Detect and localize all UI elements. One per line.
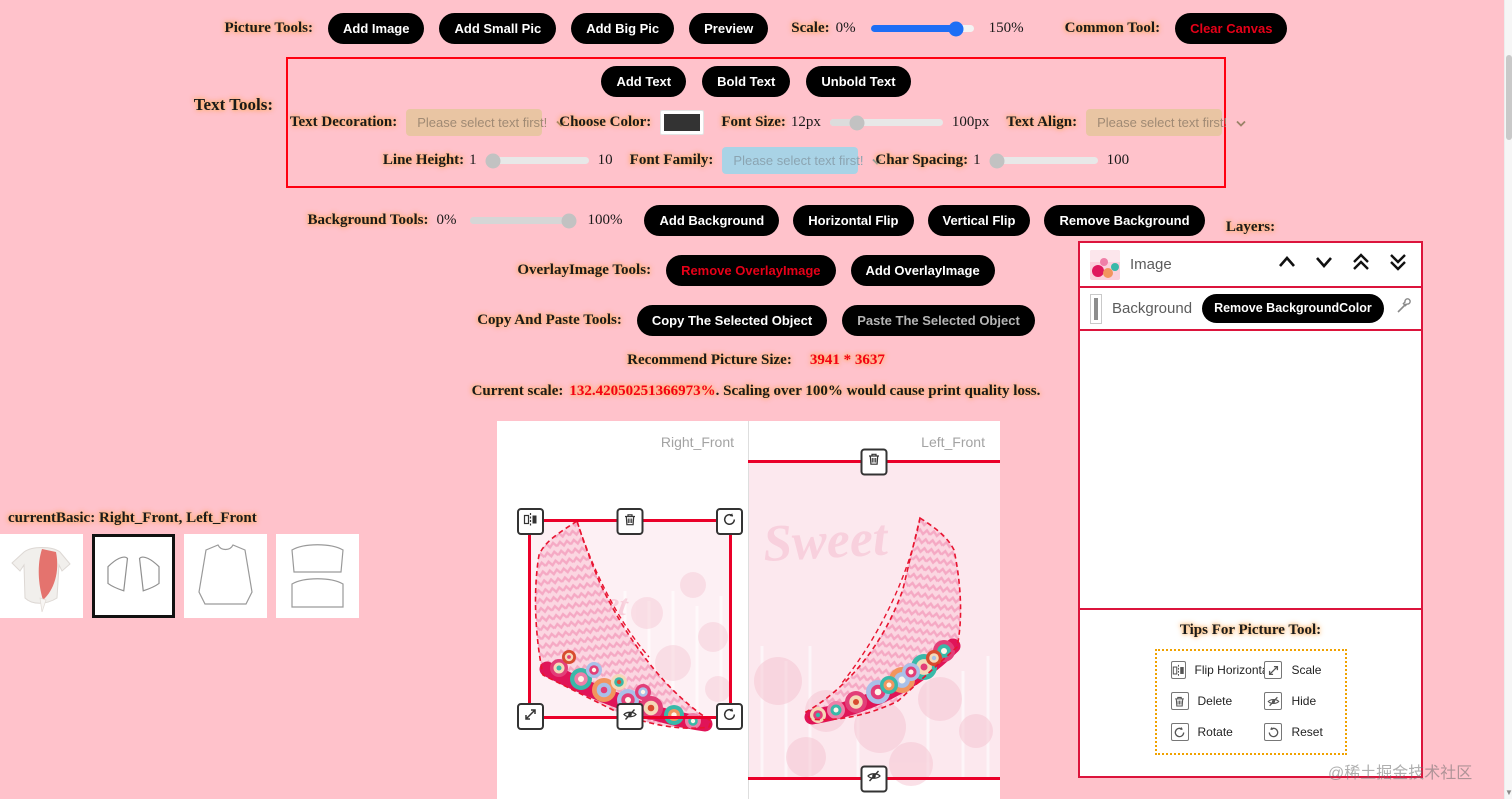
eyedropper-icon [1394,297,1412,320]
current-scale-suffix: . Scaling over 100% would cause print qu… [716,383,1041,400]
delete-handle[interactable] [617,508,644,535]
delete-icon [1171,692,1189,710]
line-height-value: 1 [469,152,477,169]
text-decoration-select[interactable]: Please select text first! [406,109,542,136]
background-opacity-thumb[interactable] [562,213,577,228]
layers-title-wrap: Layers: [1078,218,1423,236]
panel-divider [748,421,749,799]
font-size-label: Font Size: [721,114,786,131]
hide-background-handle[interactable] [861,765,888,792]
font-size-slider[interactable] [830,119,943,126]
scale-slider[interactable] [871,25,974,32]
overlay-tools-label: OverlayImage Tools: [517,262,651,279]
trash-icon [623,512,638,532]
recommend-size-label: Recommend Picture Size: [627,352,792,369]
flip-horizontal-handle[interactable] [517,508,544,535]
rotate-icon [722,512,737,532]
tips-section: Tips For Picture Tool: Flip Horizontal S… [1080,608,1421,776]
image-selection-box[interactable] [528,519,732,719]
add-small-pic-button[interactable]: Add Small Pic [439,13,556,44]
scale-handle[interactable] [517,703,544,730]
image-layer-label: Image [1130,256,1263,273]
design-canvas[interactable]: Sweet [497,421,1000,799]
basic-thumbnails-row [0,534,359,618]
background-layer-label: Background [1112,300,1192,317]
unbold-text-button[interactable]: Unbold Text [806,66,910,97]
char-spacing-value: 1 [973,152,981,169]
rotate-icon [722,707,737,727]
left-front-artwork: Sweet [748,421,1000,799]
add-image-button[interactable]: Add Image [328,13,424,44]
add-big-pic-button[interactable]: Add Big Pic [571,13,674,44]
copy-selected-object-button[interactable]: Copy The Selected Object [637,305,827,336]
tip-reset: Reset [1264,723,1332,741]
reset-handle[interactable] [716,703,743,730]
basic-thumbnail-panels[interactable] [276,534,359,618]
current-scale-label: Current scale: [472,383,564,400]
text-align-select[interactable]: Please select text first! [1086,109,1222,136]
scrollbar-down-arrow[interactable]: ▼ [1505,788,1512,797]
text-options-row-2: Line Height: 1 10 Font Family: Please se… [288,147,1224,174]
vertical-flip-button[interactable]: Vertical Flip [928,205,1031,236]
move-layer-top-button[interactable] [1347,253,1374,277]
tip-label: Hide [1291,694,1316,708]
text-tools-label: Text Tools: [194,95,273,115]
chevron-up-icon [1276,253,1298,276]
font-size-value: 12px [791,114,821,131]
tip-flip-horizontal: Flip Horizontal [1171,661,1265,679]
flip-horizontal-icon [523,512,538,532]
current-basic-section: currentBasic: Right_Front, Left_Front [0,509,359,618]
remove-background-color-button[interactable]: Remove BackgroundColor [1202,294,1384,323]
font-size-slider-thumb[interactable] [850,115,865,130]
line-height-slider[interactable] [486,157,589,164]
text-buttons-row: Add Text Bold Text Unbold Text [288,66,1224,97]
font-family-placeholder: Please select text first! [733,153,863,168]
scale-max-value: 150% [989,20,1024,37]
move-layer-up-button[interactable] [1273,253,1300,277]
background-layer-thumbnail [1090,294,1102,324]
line-height-slider-thumb[interactable] [485,153,500,168]
left-front-panel-label: Left_Front [921,434,985,450]
remove-overlay-image-button[interactable]: Remove OverlayImage [666,255,835,286]
char-spacing-max: 100 [1107,152,1130,169]
rotate-icon [1171,723,1189,741]
text-options-row-1: Text Decoration: Please select text firs… [288,109,1224,136]
delete-background-handle[interactable] [861,448,888,475]
tips-legend-box: Flip Horizontal Scale Delete Hide Rotate… [1155,649,1347,755]
add-text-button[interactable]: Add Text [601,66,686,97]
add-overlay-image-button[interactable]: Add OverlayImage [851,255,995,286]
preview-button[interactable]: Preview [689,13,768,44]
background-opacity-min: 0% [436,212,456,229]
rotate-handle[interactable] [716,508,743,535]
tip-scale: Scale [1264,661,1332,679]
font-family-label: Font Family: [630,152,714,169]
bold-text-button[interactable]: Bold Text [702,66,790,97]
basic-thumbnail-fronts[interactable] [92,534,175,618]
eyedropper-button[interactable] [1394,297,1412,321]
line-height-max: 10 [598,152,613,169]
add-background-button[interactable]: Add Background [644,205,779,236]
tip-label: Reset [1291,725,1322,739]
layers-panel: Image Background Remove BackgroundColor … [1078,241,1423,778]
layer-row-image[interactable]: Image [1080,243,1421,288]
char-spacing-label: Char Spacing: [875,152,968,169]
hide-icon [1264,692,1282,710]
background-tools-label: Background Tools: [307,212,428,229]
common-tool-label: Common Tool: [1065,20,1160,37]
chevrons-down-icon [1387,252,1409,277]
char-spacing-slider-thumb[interactable] [990,153,1005,168]
right-front-panel-label: Right_Front [661,434,734,450]
scale-icon [1264,661,1282,679]
font-size-max: 100px [952,114,990,131]
horizontal-flip-button[interactable]: Horizontal Flip [793,205,913,236]
tip-label: Flip Horizontal [1195,663,1272,677]
scale-label: Scale: [791,20,829,37]
tip-label: Delete [1198,694,1233,708]
flip-horizontal-icon [1171,661,1186,679]
tip-hide: Hide [1264,692,1332,710]
move-layer-down-button[interactable] [1310,253,1337,277]
reset-icon [1264,723,1282,741]
char-spacing-slider[interactable] [990,157,1098,164]
eye-off-icon [623,707,638,727]
tip-label: Scale [1291,663,1321,677]
layers-title: Layers: [1226,219,1275,235]
basic-thumbnail-photo[interactable] [0,534,83,618]
chevron-down-icon [1313,253,1335,276]
text-tools-section: Text Tools: Add Text Bold Text Unbold Te… [286,57,1226,188]
background-opacity-slider[interactable] [470,217,573,224]
text-align-placeholder: Please select text first! [1097,115,1227,130]
chevron-down-icon [1236,115,1246,130]
picture-tools-label: Picture Tools: [225,20,313,37]
picture-tools-row: Picture Tools: Add Image Add Small Pic A… [0,0,1512,44]
move-layer-bottom-button[interactable] [1384,253,1411,277]
clear-canvas-button[interactable]: Clear Canvas [1175,13,1287,44]
current-scale-value: 132.42050251366973% [569,383,715,400]
background-selection-line-bottom [748,777,1000,780]
choose-color-label: Choose Color: [559,114,651,131]
scale-slider-fill [871,25,960,32]
tip-rotate: Rotate [1171,723,1265,741]
basic-thumbnail-body[interactable] [184,534,267,618]
image-layer-thumbnail [1090,250,1120,280]
copy-paste-tools-label: Copy And Paste Tools: [477,312,622,329]
hide-handle[interactable] [617,703,644,730]
line-height-label: Line Height: [383,152,464,169]
scale-min-value: 0% [836,20,856,37]
paste-selected-object-button[interactable]: Paste The Selected Object [842,305,1035,336]
tip-delete: Delete [1171,692,1265,710]
tip-label: Rotate [1198,725,1233,739]
trash-icon [867,452,882,472]
text-decoration-placeholder: Please select text first! [417,115,547,130]
text-align-label: Text Align: [1006,114,1077,131]
tips-title: Tips For Picture Tool: [1080,622,1421,639]
layer-row-background[interactable]: Background Remove BackgroundColor [1080,288,1421,331]
watermark: @稀土掘金技术社区 [1328,759,1472,783]
eye-off-icon [867,769,882,789]
color-swatch [664,114,700,131]
font-family-select[interactable]: Please select text first! [722,147,858,174]
svg-text:Sweet: Sweet [762,509,891,573]
background-opacity-max: 100% [587,212,622,229]
recommend-size-value: 3941 * 3637 [810,352,885,369]
scale-slider-thumb[interactable] [949,21,964,36]
resize-diagonal-icon [523,707,538,727]
color-picker-input[interactable] [660,110,704,135]
current-basic-label: currentBasic: Right_Front, Left_Front [8,510,257,526]
scrollbar-thumb[interactable] [1506,55,1512,140]
text-decoration-label: Text Decoration: [290,114,397,131]
background-selection-line-top [748,460,1000,463]
background-opacity-fill [470,217,573,224]
chevrons-up-icon [1350,252,1372,277]
vertical-scrollbar[interactable]: ▼ [1504,0,1512,799]
